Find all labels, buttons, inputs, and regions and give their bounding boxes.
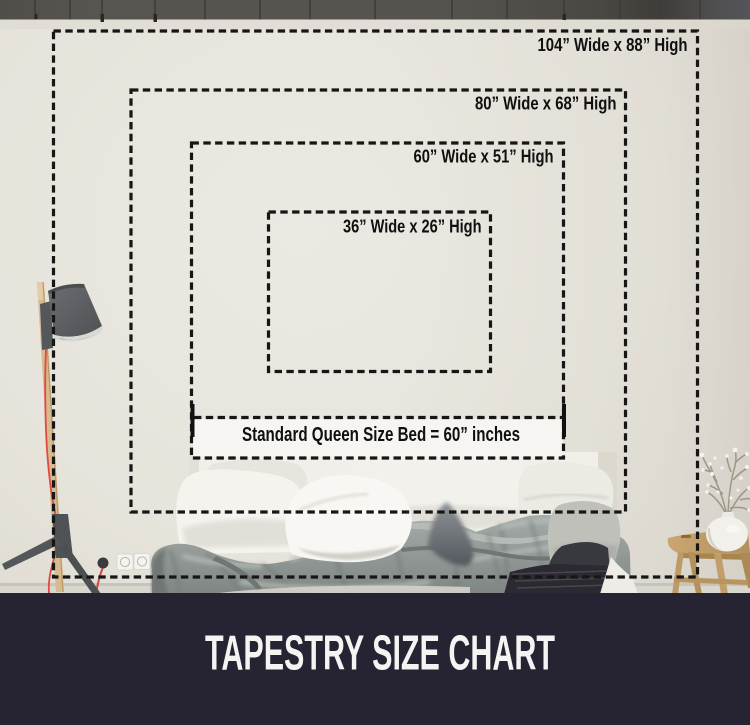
svg-text:Standard Queen Size Bed = 60”: Standard Queen Size Bed = 60” inches [242, 424, 520, 446]
svg-text:104” Wide x 88” High: 104” Wide x 88” High [538, 35, 688, 55]
svg-text:TAPESTRY SIZE CHART: TAPESTRY SIZE CHART [205, 626, 555, 681]
svg-text:36” Wide x 26” High: 36” Wide x 26” High [343, 217, 482, 237]
svg-text:60” Wide x 51” High: 60” Wide x 51” High [414, 147, 554, 167]
svg-text:80” Wide x 68” High: 80” Wide x 68” High [475, 94, 617, 114]
